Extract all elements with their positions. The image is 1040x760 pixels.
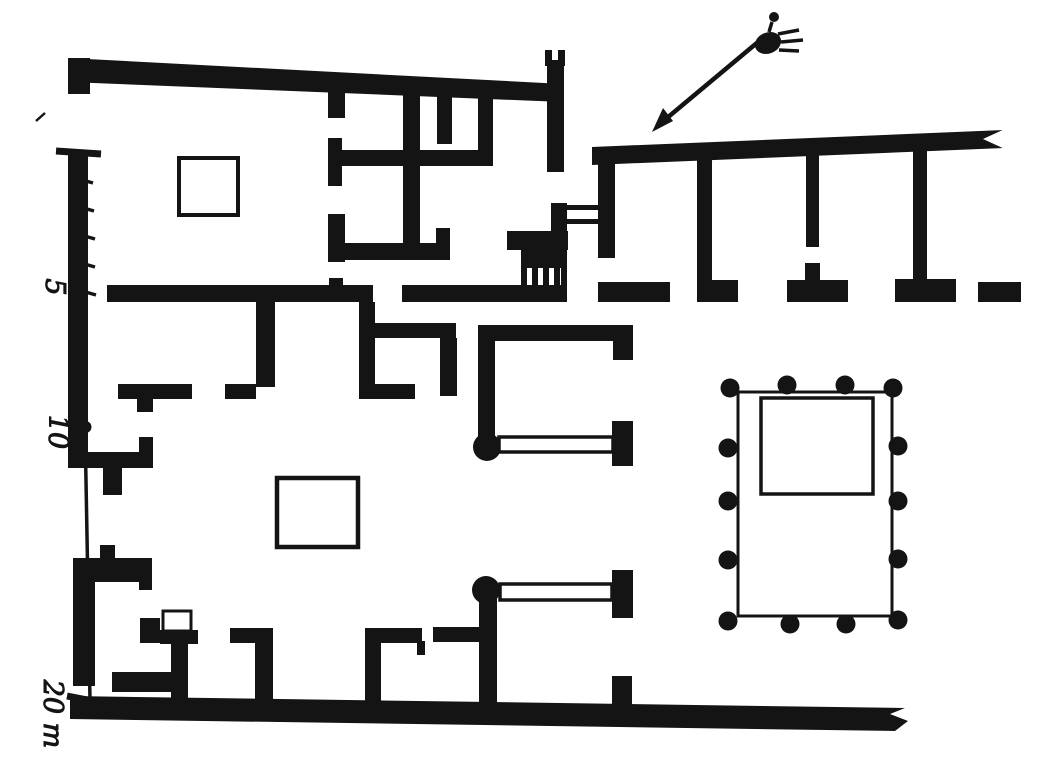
north-arrow: [652, 13, 803, 133]
upper-impluvium: [179, 158, 238, 215]
tablinum-north-wall: [478, 325, 633, 341]
portico-back-wall: [592, 130, 1004, 165]
tablinum-north-sill: [499, 437, 613, 452]
tablinum-south-pier: [612, 570, 633, 618]
arrow-head: [652, 108, 673, 132]
kitchen-hearth: [163, 611, 191, 631]
arrow-shaft: [661, 42, 758, 123]
shop-partition-2: [697, 153, 712, 283]
fauces-west-wall: [547, 60, 564, 172]
scale-label-5: 5: [39, 278, 70, 295]
floor-plan-svg: 5 10 20 m: [0, 0, 1040, 760]
shop-partition-3: [806, 148, 819, 247]
street-pier-2: [895, 279, 956, 302]
upper-rooms-south-wall: [107, 285, 373, 302]
shop-partition-4: [913, 143, 927, 282]
west-outer-wall: [68, 150, 88, 468]
north-ornament-icon: [752, 13, 803, 58]
street-portico: [592, 128, 1021, 302]
stairs: [507, 203, 598, 287]
peristyle: [719, 376, 908, 634]
corridor-south-wall: [402, 285, 567, 302]
tablinum-north-column: [473, 433, 501, 461]
street-pier-1: [787, 280, 848, 302]
street-pier-left: [598, 282, 670, 302]
tablinum-south-sill: [500, 584, 612, 600]
floor-plan-figure: 5 10 20 m: [0, 0, 1040, 760]
tablinum-north-pier: [612, 421, 633, 466]
peristyle-pool: [761, 398, 873, 494]
shop-partition-1: [598, 158, 615, 258]
street-pier-right: [978, 282, 1021, 302]
atrium-impluvium: [277, 478, 358, 547]
stray-tick: [36, 113, 45, 121]
scale-label-20m: 20 m: [37, 679, 68, 749]
